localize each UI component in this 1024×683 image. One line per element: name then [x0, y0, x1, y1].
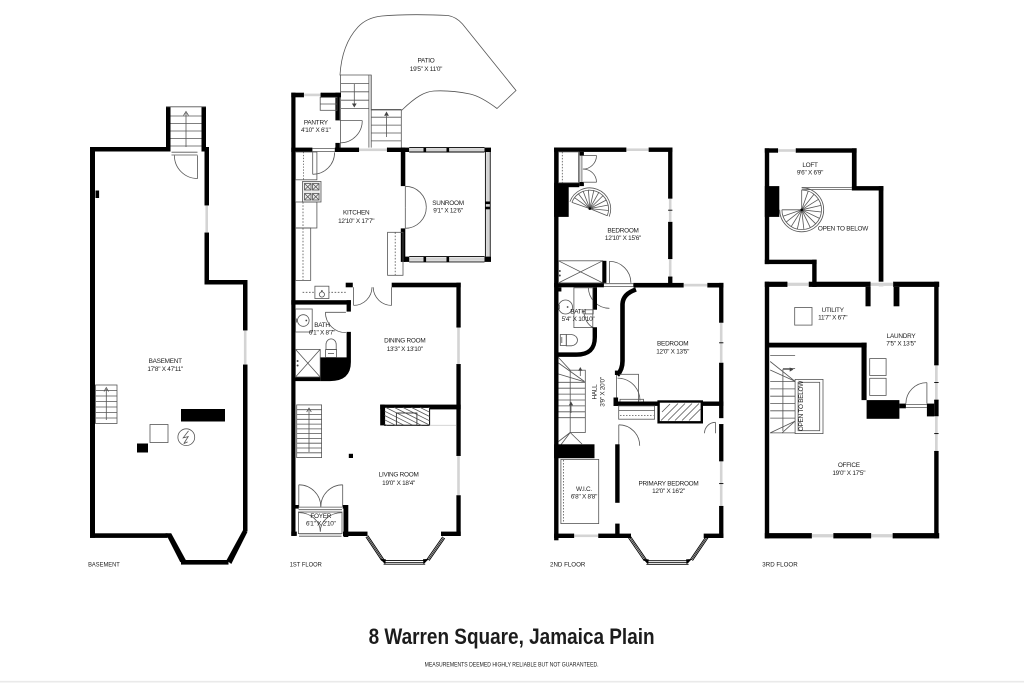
svg-text:FOYER: FOYER — [310, 513, 331, 520]
svg-text:LOFT: LOFT — [802, 162, 818, 169]
svg-text:OPEN TO BELOW: OPEN TO BELOW — [798, 380, 805, 431]
svg-text:3RD FLOOR: 3RD FLOOR — [762, 561, 798, 568]
svg-text:BEDROOM: BEDROOM — [657, 340, 688, 347]
svg-text:PRIMARY BEDROOM: PRIMARY BEDROOM — [639, 481, 699, 488]
svg-text:12'10" X 17'7": 12'10" X 17'7" — [338, 218, 374, 225]
svg-text:7'5" X 13'5": 7'5" X 13'5" — [886, 341, 916, 348]
svg-text:SUNROOM: SUNROOM — [432, 200, 464, 207]
svg-text:5'4" X 10'10": 5'4" X 10'10" — [562, 316, 595, 323]
svg-text:1ST FLOOR: 1ST FLOOR — [290, 561, 322, 568]
svg-text:UTILITY: UTILITY — [822, 307, 845, 314]
svg-text:4'10" X 6'1": 4'10" X 6'1" — [301, 127, 331, 134]
svg-text:8 Warren Square, Jamaica Plain: 8 Warren Square, Jamaica Plain — [369, 624, 655, 649]
svg-text:9'1" X 12'6": 9'1" X 12'6" — [433, 208, 463, 215]
svg-text:2ND FLOOR: 2ND FLOOR — [550, 561, 586, 568]
svg-text:LAUNDRY: LAUNDRY — [887, 333, 917, 340]
svg-text:12'10" X 15'6": 12'10" X 15'6" — [605, 235, 641, 242]
svg-text:11'7" X 6'7": 11'7" X 6'7" — [818, 315, 847, 322]
svg-text:19'0" X 17'5": 19'0" X 17'5" — [832, 470, 865, 477]
svg-text:13'3" X 13'10": 13'3" X 13'10" — [387, 346, 423, 353]
svg-text:BASEMENT: BASEMENT — [88, 561, 120, 568]
svg-text:3'9" X 20'0": 3'9" X 20'0" — [600, 377, 607, 407]
svg-text:BASEMENT: BASEMENT — [149, 358, 183, 365]
svg-text:BEDROOM: BEDROOM — [607, 228, 638, 235]
svg-text:BATH: BATH — [314, 322, 330, 329]
svg-text:PANTRY: PANTRY — [304, 120, 329, 127]
svg-text:OPEN TO BELOW: OPEN TO BELOW — [818, 226, 869, 233]
svg-text:MEASUREMENTS DEEMED HIGHLY REL: MEASUREMENTS DEEMED HIGHLY RELIABLE BUT … — [425, 661, 599, 668]
svg-text:OFFICE: OFFICE — [838, 462, 860, 469]
svg-text:19'0" X 18'4": 19'0" X 18'4" — [382, 480, 415, 487]
svg-text:KITCHEN: KITCHEN — [343, 209, 370, 216]
svg-text:19'5" X 11'0": 19'5" X 11'0" — [410, 66, 442, 73]
svg-text:HALL: HALL — [592, 384, 599, 400]
svg-text:6'1" X 2'10": 6'1" X 2'10" — [306, 521, 336, 528]
svg-text:W.I.C.: W.I.C. — [576, 486, 592, 493]
svg-text:12'0" X 13'5": 12'0" X 13'5" — [656, 348, 689, 355]
svg-text:6'1" X 8'7": 6'1" X 8'7" — [309, 329, 335, 336]
svg-text:PATIO: PATIO — [418, 58, 435, 65]
svg-text:12'0" X 16'2": 12'0" X 16'2" — [652, 488, 685, 495]
svg-text:LIVING ROOM: LIVING ROOM — [379, 472, 419, 479]
svg-text:DINING ROOM: DINING ROOM — [384, 338, 425, 345]
svg-text:BATH: BATH — [570, 308, 586, 315]
svg-text:6'8" X 8'8": 6'8" X 8'8" — [571, 494, 597, 501]
svg-text:17'8" X 47'11": 17'8" X 47'11" — [147, 366, 183, 373]
svg-text:9'6" X 6'9": 9'6" X 6'9" — [797, 170, 823, 177]
